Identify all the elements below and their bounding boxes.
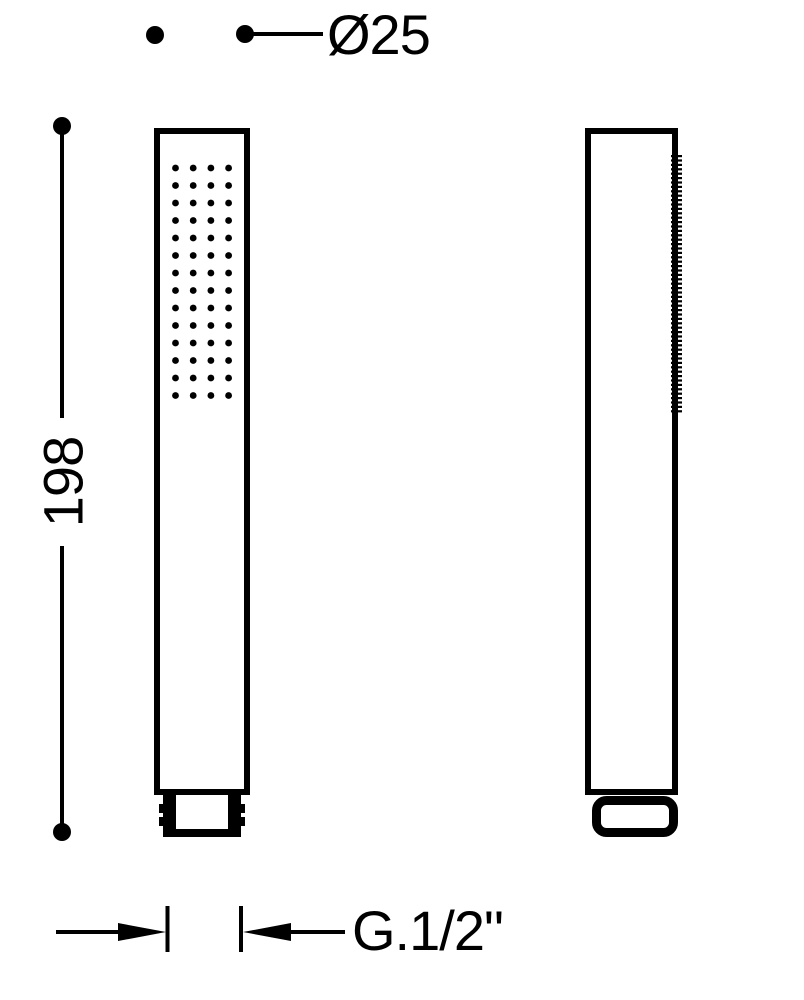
spray-nozzle-dot [225, 200, 232, 207]
spray-nozzle-dot [225, 375, 232, 382]
spray-nozzle-dot [208, 375, 215, 382]
spray-nozzle-dot [190, 287, 197, 294]
serration-tick [671, 195, 682, 197]
spray-nozzle-dot [190, 252, 197, 259]
serration-tick [671, 208, 682, 210]
dimension-arrow-left-icon [243, 923, 291, 941]
thread-label: G.1/2" [352, 899, 503, 962]
front-view [157, 131, 247, 837]
serration-tick [671, 212, 682, 214]
diameter-label: Ø25 [327, 3, 430, 66]
spray-nozzle-dot [225, 340, 232, 347]
spray-nozzle-dot [208, 270, 215, 277]
serration-tick [671, 388, 682, 390]
spray-nozzle-dot [172, 217, 179, 224]
serration-tick [671, 393, 682, 395]
serration-tick [671, 256, 682, 258]
serration-tick [671, 322, 682, 324]
spray-nozzle-dot [225, 165, 232, 172]
spray-nozzle-dot [190, 305, 197, 312]
serration-tick [671, 234, 682, 236]
spray-nozzle-dot [225, 235, 232, 242]
serration-tick [671, 274, 682, 276]
serration-tick [671, 366, 682, 368]
serration-tick [671, 190, 682, 192]
spray-nozzle-dot [172, 165, 179, 172]
serration-tick [671, 300, 682, 302]
thread-notch [240, 804, 245, 813]
serration-tick [671, 379, 682, 381]
spray-nozzle-dot [208, 182, 215, 189]
serration-tick [671, 335, 682, 337]
serration-tick [671, 410, 682, 412]
spray-nozzle-dot [225, 270, 232, 277]
spray-nozzle-dot [208, 165, 215, 172]
serration-tick [671, 362, 682, 364]
serration-tick [671, 239, 682, 241]
dimension-dot-icon [53, 823, 71, 841]
serration-tick [671, 186, 682, 188]
serration-tick [671, 168, 682, 170]
spray-nozzle-dot [190, 322, 197, 329]
serration-tick [671, 287, 682, 289]
spray-nozzle-dot [225, 217, 232, 224]
spray-nozzle-dot [225, 392, 232, 399]
serration-tick [671, 283, 682, 285]
spray-nozzle-dot [172, 322, 179, 329]
serration-tick [671, 296, 682, 298]
spray-nozzle-dot [190, 392, 197, 399]
spray-nozzle-dot [208, 252, 215, 259]
serration-tick [671, 401, 682, 403]
serration-tick [671, 305, 682, 307]
spray-nozzle-dot [190, 235, 197, 242]
spray-nozzle-dot [208, 217, 215, 224]
spray-nozzle-dot [172, 182, 179, 189]
serration-tick [671, 181, 682, 183]
serration-tick [671, 375, 682, 377]
spray-nozzle-dot [190, 165, 197, 172]
spray-nozzle-dot [190, 340, 197, 347]
spray-nozzle-dot [172, 287, 179, 294]
serration-tick [671, 309, 682, 311]
serration-tick [671, 371, 682, 373]
serration-tick [671, 261, 682, 263]
spray-nozzle-dot [208, 305, 215, 312]
spray-nozzle-dot [172, 392, 179, 399]
spray-nozzle-dot [208, 235, 215, 242]
spray-nozzle-dot [172, 340, 179, 347]
serration-tick [671, 353, 682, 355]
serration-tick [671, 278, 682, 280]
spray-nozzle-dot [225, 322, 232, 329]
serration-tick [671, 247, 682, 249]
spray-nozzle-dot [172, 305, 179, 312]
serration-tick [671, 349, 682, 351]
front-thread-connector [159, 795, 245, 837]
diameter-dimension: Ø25 [146, 3, 430, 66]
spray-nozzle-dot [208, 287, 215, 294]
spray-nozzle-dot [172, 357, 179, 364]
thread-notch [240, 817, 245, 826]
spray-nozzle-dot [190, 375, 197, 382]
serration-tick [671, 269, 682, 271]
spray-nozzle-dot [208, 392, 215, 399]
side-view [588, 131, 682, 833]
serration-tick [671, 230, 682, 232]
spray-nozzle-dot [225, 252, 232, 259]
thread-notch [159, 804, 164, 813]
serration-tick [671, 384, 682, 386]
side-body-outline [588, 131, 675, 792]
spray-nozzle-dot [208, 200, 215, 207]
serration-tick [671, 225, 682, 227]
serration-tick [671, 331, 682, 333]
serration-tick [671, 177, 682, 179]
serration-tick [671, 203, 682, 205]
serration-tick [671, 164, 682, 166]
side-thread-connector [597, 801, 674, 833]
dimension-dot-icon [146, 26, 164, 44]
length-label: 198 [32, 437, 95, 527]
serration-tick [671, 221, 682, 223]
spray-nozzle-dot [190, 270, 197, 277]
spray-nozzle-dot [172, 200, 179, 207]
spray-nozzle-dot [190, 200, 197, 207]
spray-nozzle-dot [225, 357, 232, 364]
spray-nozzle-dot [172, 375, 179, 382]
serration-tick [671, 397, 682, 399]
dimension-arrow-right-icon [118, 923, 166, 941]
serration-tick [671, 340, 682, 342]
serration-tick [671, 265, 682, 267]
serration-tick [671, 318, 682, 320]
length-dimension: 198 [32, 117, 95, 841]
serration-tick [671, 159, 682, 161]
spray-nozzle-dot [225, 182, 232, 189]
spray-nozzle-dot [190, 217, 197, 224]
front-body-outline [157, 131, 247, 792]
serration-tick [671, 344, 682, 346]
serration-tick [671, 173, 682, 175]
serration-tick [671, 406, 682, 408]
serration-tick [671, 327, 682, 329]
spray-nozzle-dot [225, 305, 232, 312]
spray-nozzle-dot [208, 357, 215, 364]
serration-tick [671, 199, 682, 201]
serration-tick [671, 252, 682, 254]
serration-tick [671, 243, 682, 245]
spray-nozzle-dot [172, 270, 179, 277]
spray-nozzle-dot [208, 340, 215, 347]
thread-dimension: G.1/2" [56, 899, 503, 962]
spray-nozzle-dot [190, 357, 197, 364]
spray-nozzle-dot [190, 182, 197, 189]
serration-tick [671, 313, 682, 315]
thread-notch [159, 817, 164, 826]
spray-nozzle-dot [225, 287, 232, 294]
serration-tick [671, 291, 682, 293]
serration-tick [671, 155, 682, 157]
serration-tick [671, 357, 682, 359]
spray-nozzle-dot [172, 235, 179, 242]
serration-tick [671, 217, 682, 219]
spray-nozzle-dot [172, 252, 179, 259]
spray-nozzle-dot [208, 322, 215, 329]
connector-bottom-wall [163, 829, 241, 837]
handshower-technical-drawing: Ø25 198 G.1/2" [0, 0, 804, 1000]
